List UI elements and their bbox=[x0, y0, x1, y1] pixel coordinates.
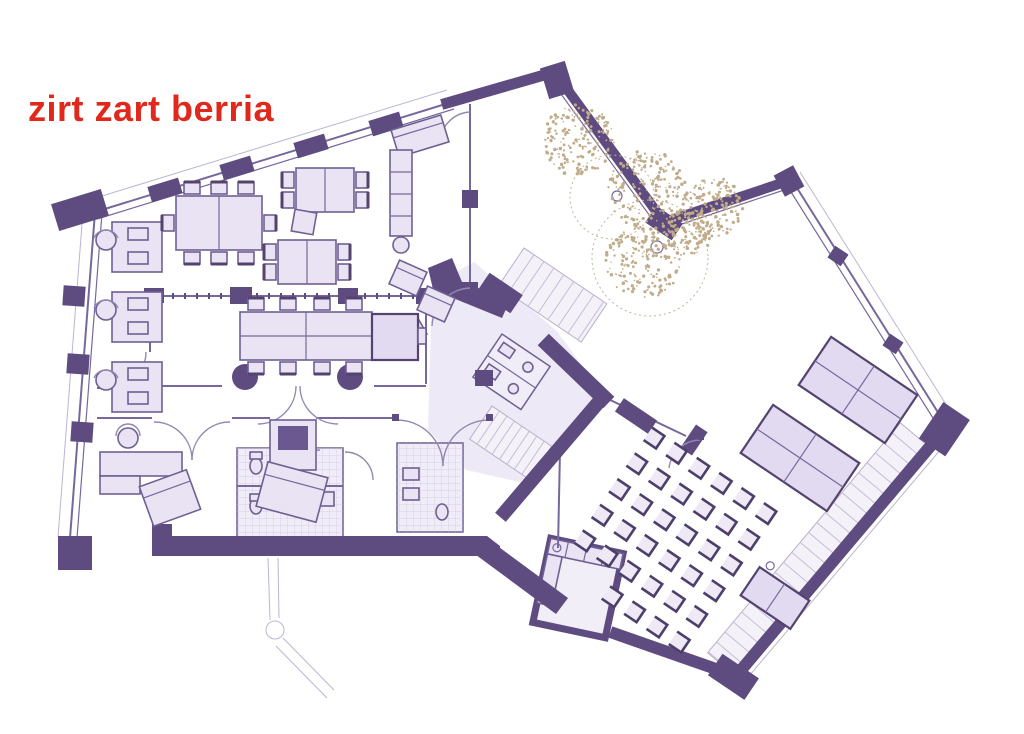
chair bbox=[338, 244, 350, 260]
workstation bbox=[94, 222, 162, 272]
chair bbox=[338, 264, 350, 280]
chair bbox=[314, 362, 330, 374]
wall-step bbox=[152, 524, 172, 556]
wall-pillar bbox=[219, 156, 254, 181]
floor-plan-drawing bbox=[0, 0, 1024, 734]
chair bbox=[280, 362, 296, 374]
reception-desk bbox=[100, 452, 182, 476]
toilet-tank bbox=[250, 452, 262, 459]
classroom-chair bbox=[698, 539, 719, 560]
table-4seat bbox=[282, 168, 368, 212]
classroom-chair bbox=[755, 503, 776, 524]
toilet bbox=[250, 458, 262, 474]
classroom-chair bbox=[703, 580, 724, 601]
copier bbox=[278, 426, 308, 450]
classroom-chair bbox=[693, 499, 714, 520]
workstations bbox=[94, 222, 162, 412]
coffee-table bbox=[291, 209, 316, 234]
chair bbox=[162, 215, 174, 231]
classroom-chair bbox=[671, 483, 692, 504]
corner-block bbox=[58, 536, 92, 570]
chair bbox=[346, 298, 362, 310]
shelf bbox=[390, 150, 412, 236]
wall-pillar bbox=[293, 134, 328, 159]
classroom-chair bbox=[716, 514, 737, 535]
classroom-chair bbox=[659, 550, 680, 571]
classroom-chair bbox=[711, 473, 732, 494]
wall-pillar bbox=[62, 285, 85, 306]
classroom-chair bbox=[681, 565, 702, 586]
sink bbox=[403, 468, 419, 480]
chair bbox=[211, 182, 227, 194]
chair bbox=[282, 172, 294, 188]
classroom-chair bbox=[646, 616, 667, 637]
workstation bbox=[94, 362, 162, 412]
stool bbox=[393, 237, 409, 253]
workstation bbox=[94, 292, 162, 342]
classroom-chair bbox=[636, 535, 657, 556]
classroom-chair bbox=[733, 488, 754, 509]
chair bbox=[264, 215, 276, 231]
reception-desk-return bbox=[100, 476, 140, 494]
chair bbox=[238, 182, 254, 194]
classroom-chair bbox=[654, 509, 675, 530]
lounge-chair bbox=[139, 470, 200, 527]
chair bbox=[248, 298, 264, 310]
classroom-chair bbox=[688, 458, 709, 479]
presentation-table bbox=[372, 314, 418, 360]
chair bbox=[282, 192, 294, 208]
chair bbox=[238, 252, 254, 264]
table-4seat bbox=[264, 240, 350, 284]
wall-pillar bbox=[70, 421, 93, 442]
classroom-chair bbox=[626, 453, 647, 474]
classroom-chair bbox=[609, 479, 630, 500]
classroom-chair bbox=[721, 554, 742, 575]
chair bbox=[118, 428, 138, 448]
classroom-chair bbox=[649, 468, 670, 489]
chair bbox=[264, 244, 276, 260]
chair bbox=[314, 298, 330, 310]
sink bbox=[403, 488, 419, 500]
floor-plan-page: zirt zart berria bbox=[0, 0, 1024, 734]
chair bbox=[346, 362, 362, 374]
exterior-path bbox=[266, 558, 334, 698]
chair bbox=[280, 298, 296, 310]
classroom-chair bbox=[738, 529, 759, 550]
toilet bbox=[436, 504, 448, 520]
chair bbox=[356, 172, 368, 188]
chair bbox=[264, 264, 276, 280]
classroom-chair bbox=[664, 591, 685, 612]
classroom-chair bbox=[676, 524, 697, 545]
classroom-chair bbox=[631, 494, 652, 515]
classroom-chair bbox=[592, 505, 613, 526]
classroom-chair bbox=[641, 576, 662, 597]
chair bbox=[211, 252, 227, 264]
wall-pillar bbox=[66, 353, 89, 374]
bottom-wall bbox=[168, 536, 500, 556]
chair bbox=[184, 182, 200, 194]
chair bbox=[184, 252, 200, 264]
conference-table bbox=[240, 298, 426, 374]
classroom-chair bbox=[624, 601, 645, 622]
classroom-chair bbox=[614, 520, 635, 541]
classroom-chair bbox=[686, 606, 707, 627]
chair bbox=[248, 362, 264, 374]
chair bbox=[356, 192, 368, 208]
